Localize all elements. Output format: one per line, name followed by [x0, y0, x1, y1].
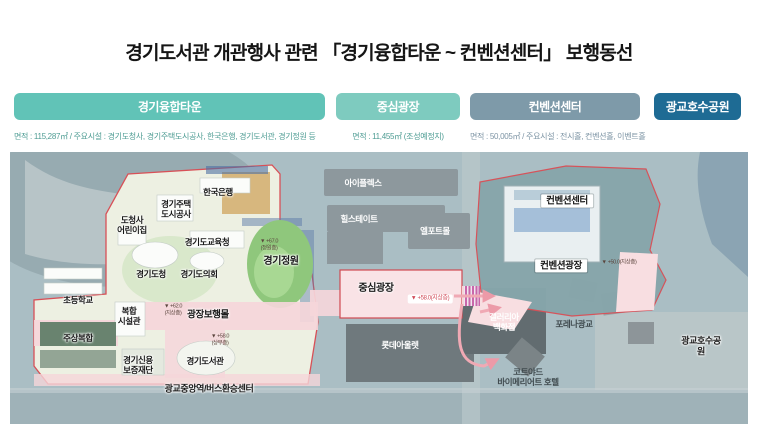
tab-gyeonggi-convergence-town[interactable]: 경기융합타운: [14, 93, 325, 120]
tab-central-plaza[interactable]: 중심광장: [336, 93, 460, 120]
route-map: 한국은행 경기주택 도시공사 도청사 어린이집 경기도교육청 경기도청 경기도의…: [10, 152, 748, 424]
page-title: 경기도서관 개관행사 관련 「경기융합타운 ~ 컨벤션센터」 보행동선: [0, 38, 758, 65]
satellite-map-graphic: [10, 152, 748, 424]
zone-info-convention-center: 면적 : 50,005㎡ / 주요시설 : 전시홀, 컨벤션홀, 이벤트홀: [470, 131, 645, 142]
zone-info-convergence-town: 면적 : 115,287㎡ / 주요시설 : 경기도청사, 경기주택도시공사, …: [14, 131, 316, 142]
zone-info-central-plaza: 면적 : 11,455㎡ (조성예정지): [336, 131, 460, 142]
tab-convention-center[interactable]: 컨벤션센터: [470, 93, 640, 120]
tab-gwanggyo-lake-park[interactable]: 광교호수공원: [654, 93, 741, 120]
